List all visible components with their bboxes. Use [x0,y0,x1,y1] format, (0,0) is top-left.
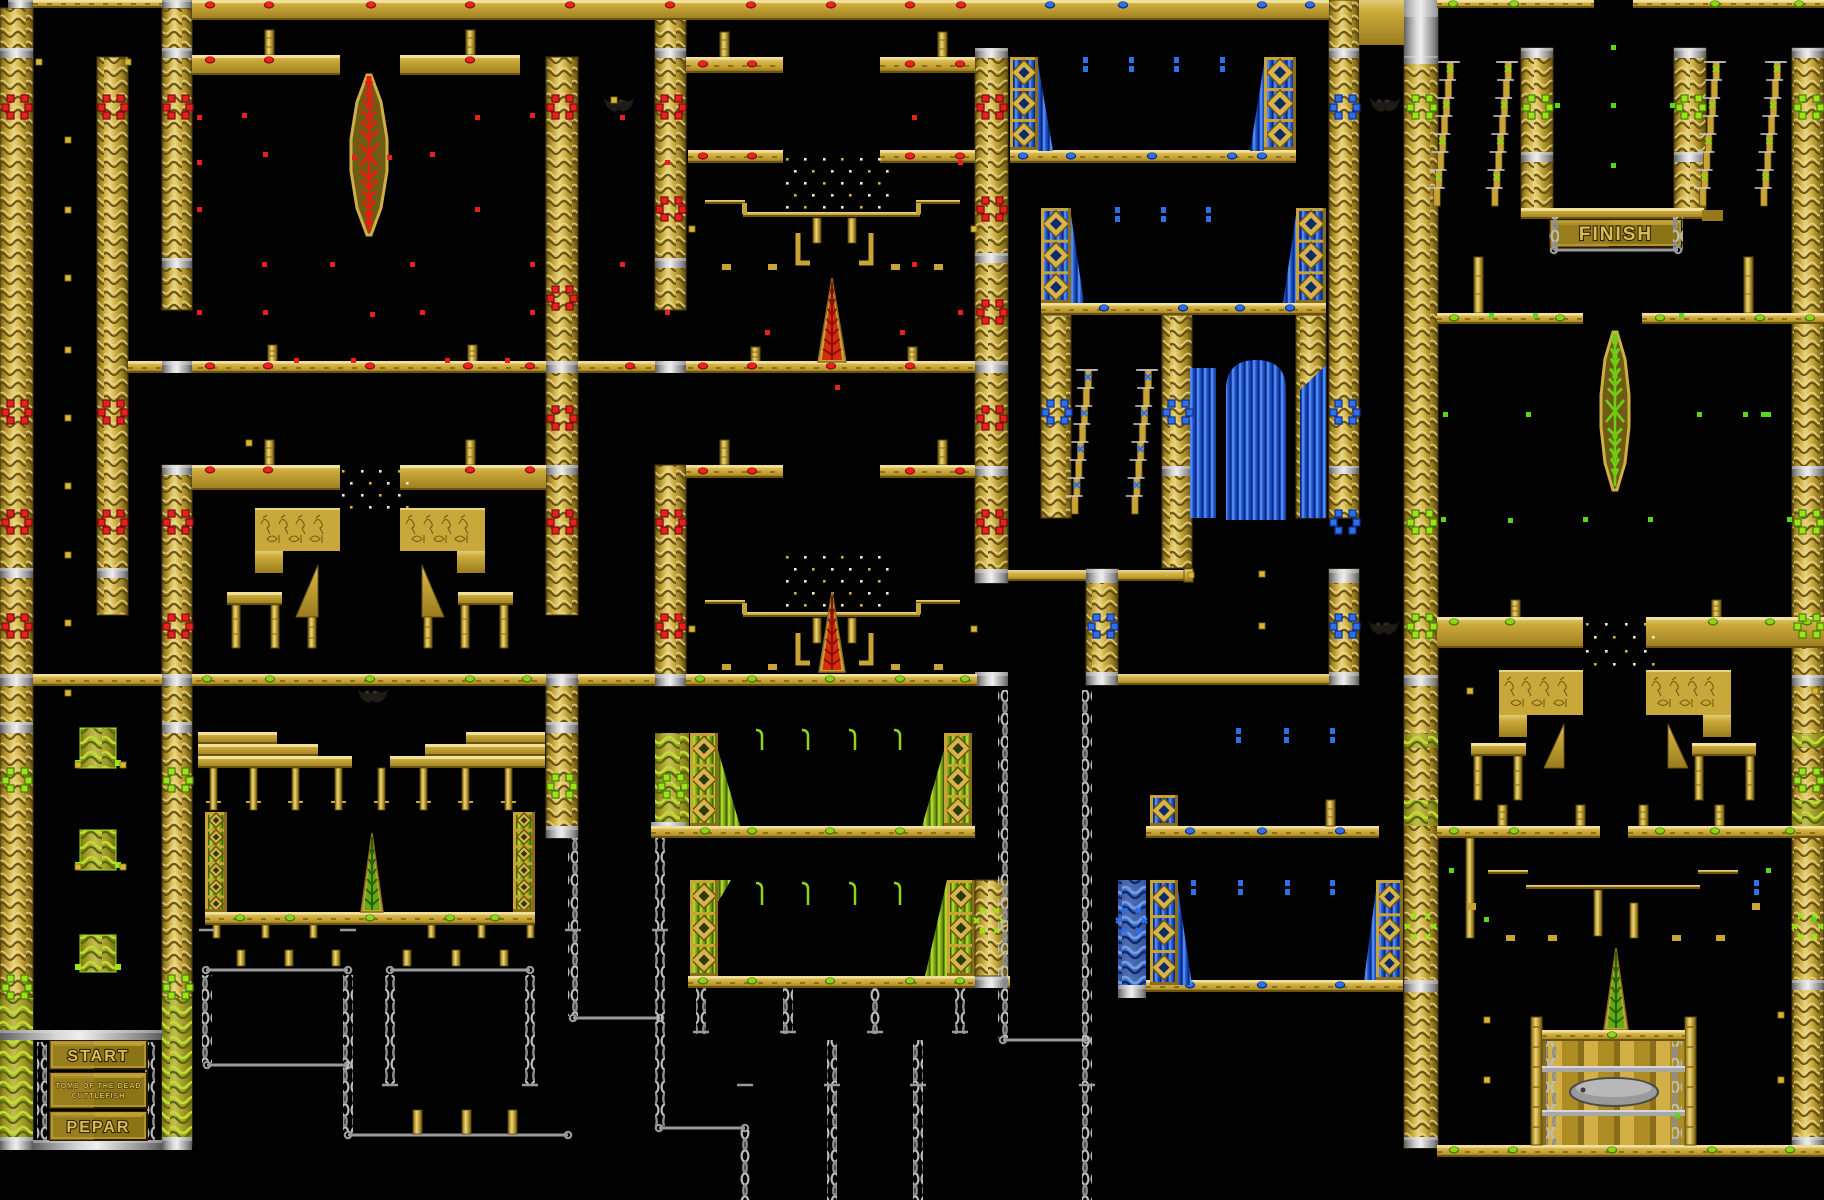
svg-text:PEPAR: PEPAR [67,1119,131,1136]
svg-text:CUTTLEFISH: CUTTLEFISH [72,1093,126,1100]
svg-text:FINISH: FINISH [1579,224,1653,245]
svg-text:TOMB OF THE DEAD: TOMB OF THE DEAD [56,1083,142,1090]
svg-text:START: START [67,1048,129,1065]
